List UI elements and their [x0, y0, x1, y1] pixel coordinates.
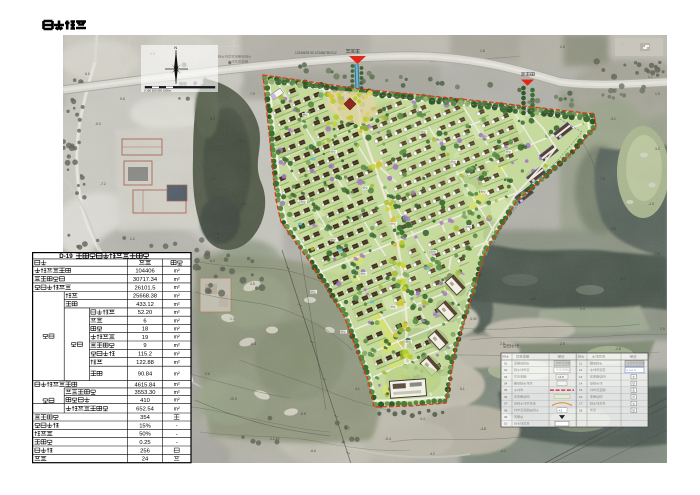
svg-text:m²: m² — [174, 343, 180, 349]
svg-text:0 100 200 500: 0 100 200 500 1000m — [144, 89, 172, 93]
svg-text:9: 9 — [143, 343, 146, 349]
svg-text:16.8: 16.8 — [558, 375, 564, 379]
svg-text:-: - — [176, 440, 178, 446]
svg-text:07: 07 — [504, 402, 508, 406]
svg-text:19: 19 — [142, 335, 148, 341]
svg-text:52.20: 52.20 — [138, 310, 153, 316]
svg-text:m²: m² — [174, 310, 180, 316]
svg-text:06: 06 — [504, 395, 508, 399]
svg-text:m²: m² — [174, 277, 180, 283]
svg-text:104406: 104406 — [135, 269, 154, 275]
svg-text:N: N — [174, 45, 177, 50]
svg-text:16: 16 — [579, 395, 583, 399]
svg-text:11: 11 — [579, 361, 582, 365]
svg-text:50%: 50% — [139, 432, 151, 438]
svg-text:4615.84: 4615.84 — [135, 382, 157, 388]
svg-text:4.5: 4.5 — [559, 408, 563, 412]
svg-text:18: 18 — [142, 327, 148, 333]
svg-text:m²: m² — [174, 318, 180, 324]
svg-text:25668.38: 25668.38 — [133, 294, 157, 300]
svg-text:m²: m² — [174, 302, 180, 308]
svg-text:m²: m² — [174, 360, 180, 366]
svg-text:17: 17 — [579, 402, 583, 406]
svg-text:05: 05 — [504, 388, 508, 392]
svg-text:354: 354 — [140, 415, 150, 421]
svg-text:m²: m² — [174, 268, 180, 274]
svg-text:o o o o: o o o o — [627, 368, 637, 372]
svg-text:08: 08 — [504, 408, 508, 412]
svg-text:0.25: 0.25 — [139, 440, 150, 446]
svg-text:m²: m² — [174, 382, 180, 388]
svg-text:04: 04 — [504, 382, 508, 386]
svg-text:115.2: 115.2 — [138, 352, 152, 358]
svg-text:m²: m² — [174, 335, 180, 341]
svg-text:-: - — [176, 432, 178, 438]
svg-text:m²: m² — [174, 285, 180, 291]
svg-text:m²: m² — [174, 390, 180, 396]
svg-text:24: 24 — [142, 457, 149, 463]
svg-text:D-19: D-19 — [59, 253, 73, 260]
svg-text:14: 14 — [579, 382, 583, 386]
svg-text:m²: m² — [174, 398, 180, 404]
svg-text:13: 13 — [579, 375, 583, 379]
svg-text:m²: m² — [174, 327, 180, 333]
svg-text:6: 6 — [143, 319, 146, 325]
svg-text:15%: 15% — [139, 423, 151, 429]
svg-text:m²: m² — [174, 294, 180, 300]
svg-text:m²: m² — [174, 371, 180, 377]
svg-text:15: 15 — [579, 388, 583, 392]
svg-text:26101.5: 26101.5 — [135, 285, 156, 291]
svg-text:652.54: 652.54 — [136, 406, 155, 412]
svg-text:02: 02 — [504, 368, 508, 372]
svg-text:90.84: 90.84 — [138, 372, 153, 378]
svg-text:122.88: 122.88 — [136, 360, 154, 366]
svg-text:09: 09 — [504, 415, 508, 419]
svg-text:01: 01 — [504, 361, 508, 365]
svg-text:410: 410 — [140, 398, 150, 404]
svg-text:18: 18 — [579, 408, 583, 412]
svg-text:3553.30: 3553.30 — [135, 390, 156, 396]
svg-text:10: 10 — [504, 422, 508, 426]
svg-text:-: - — [176, 423, 178, 429]
svg-text:03: 03 — [504, 375, 508, 379]
svg-text:30717.34: 30717.34 — [133, 277, 158, 283]
svg-text:12: 12 — [579, 368, 583, 372]
svg-text:m²: m² — [174, 406, 180, 412]
svg-text:256: 256 — [140, 448, 150, 454]
svg-text:m²: m² — [174, 352, 180, 358]
svg-text:433.12: 433.12 — [136, 302, 154, 308]
